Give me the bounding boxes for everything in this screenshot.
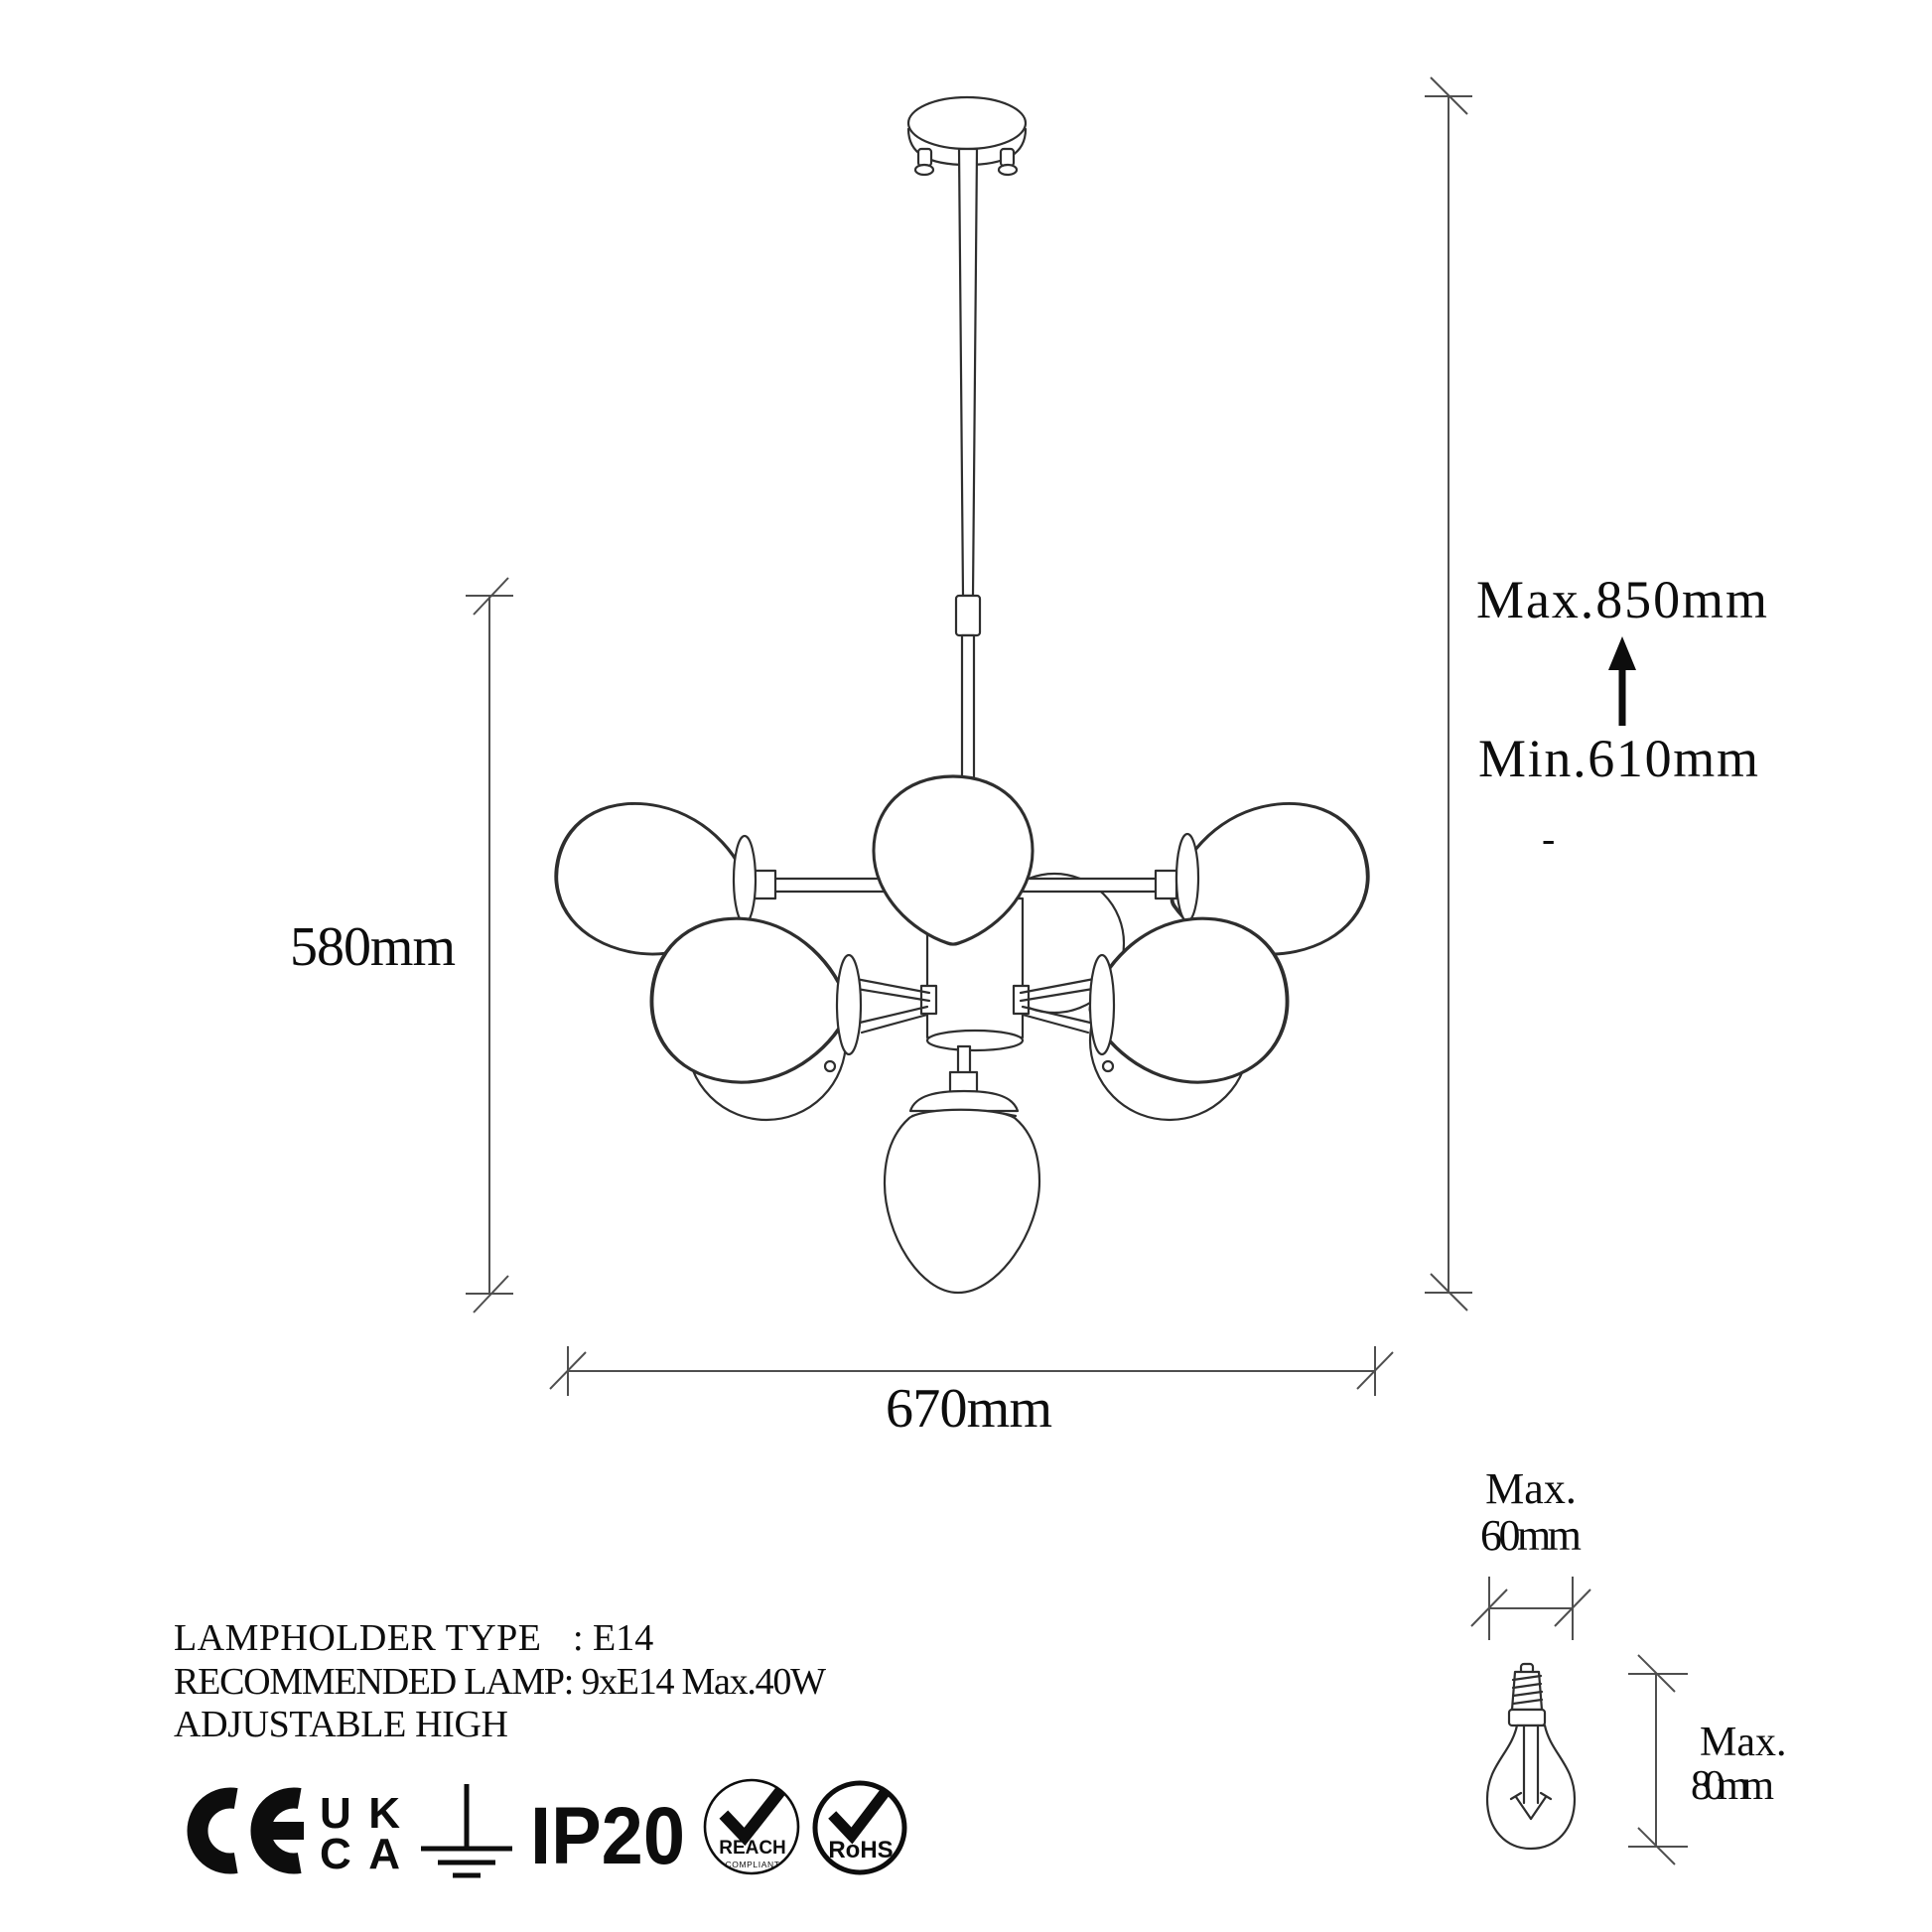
reach-badge-icon: REACH COMPLIANT: [705, 1780, 798, 1873]
spec-text-block: LAMPHOLDER TYPE : E14 RECOMMENDED LAMP: …: [174, 1617, 826, 1745]
rim-middle-left: [837, 955, 861, 1054]
arm-lower-left-rod2b: [862, 1015, 927, 1033]
certification-row: UK CA IP20 REACH COMPLIANT RoHS: [198, 1780, 904, 1881]
bulb-collar: [1509, 1710, 1545, 1725]
canopy-screw-right-foot: [999, 165, 1017, 175]
spec-lampholder-label: LAMPHOLDER TYPE: [174, 1617, 541, 1659]
label-bulb-height-value: 80mm: [1691, 1763, 1774, 1809]
dimension-fixture-height: 580mm: [290, 578, 513, 1312]
light-bulb-icon: [1487, 1664, 1575, 1849]
spec-lampholder-value: : E14: [573, 1617, 653, 1659]
rim-middle-right: [1090, 955, 1114, 1054]
rod-joint: [956, 596, 980, 635]
dimension-bulb-height: [1628, 1655, 1688, 1864]
reach-label: REACH: [719, 1838, 786, 1859]
canopy-screw-left: [918, 149, 931, 166]
ce-letter-c: [198, 1798, 236, 1863]
rod-lower: [962, 635, 974, 782]
arrow-head: [1608, 636, 1636, 670]
rod-upper: [959, 149, 977, 596]
canopy-screw-right: [1001, 149, 1014, 166]
arm-upper-right: [1023, 879, 1157, 892]
arm-lower-left-rod2: [860, 1007, 927, 1023]
chandelier-drawing: [542, 97, 1381, 1293]
bulb-diagram: Max. 60mm: [1471, 1464, 1787, 1864]
hub-flange: [927, 1031, 1023, 1050]
label-bulb-width-max: Max.: [1485, 1464, 1577, 1513]
label-bulb-height-max: Max.: [1700, 1720, 1787, 1765]
dimension-adjustable-height: Max.850mm Min.610mm -: [1425, 77, 1767, 1311]
bottom-collar: [910, 1091, 1018, 1111]
label-dash: -: [1542, 816, 1555, 861]
bottom-stem: [958, 1046, 970, 1074]
up-arrow-icon: [1608, 636, 1636, 726]
spec-adjustable-high: ADJUSTABLE HIGH: [174, 1704, 508, 1745]
arm-lower-right-rod2b: [1023, 1015, 1088, 1033]
label-fixture-height: 580mm: [290, 916, 456, 978]
dimension-bulb-width: [1471, 1577, 1590, 1640]
rim-upper-left: [734, 836, 756, 923]
reach-sublabel: COMPLIANT: [726, 1860, 780, 1869]
arm-upper-left-bracket: [755, 871, 775, 898]
chandelier-spec-diagram: Max.850mm Min.610mm - 580mm 670mm Max. 6…: [0, 0, 1932, 1932]
bottom-assembly: [885, 1046, 1039, 1293]
ip-rating-mark: IP20: [530, 1791, 685, 1881]
canopy-screw-left-foot: [915, 165, 933, 175]
ukca-line2: CA: [320, 1830, 400, 1878]
dimension-fixture-width: 670mm: [550, 1346, 1393, 1440]
label-height-min: Min.610mm: [1478, 729, 1758, 788]
ukca-mark: UK CA: [320, 1789, 400, 1878]
rohs-badge-icon: RoHS: [815, 1783, 904, 1872]
label-bulb-width-value: 60mm: [1480, 1511, 1582, 1560]
reach-checkmark: [728, 1795, 777, 1837]
diagram-canvas: Max.850mm Min.610mm - 580mm 670mm Max. 6…: [0, 0, 1932, 1932]
canopy-top: [908, 97, 1026, 149]
label-fixture-width: 670mm: [886, 1378, 1052, 1440]
rohs-checkmark: [836, 1794, 884, 1836]
ce-mark-icon: [198, 1798, 304, 1863]
rim-upper-right: [1176, 834, 1198, 921]
earth-ground-icon: [421, 1784, 512, 1875]
spec-recommended-lamp: RECOMMENDED LAMP: 9xE14 Max.40W: [174, 1661, 826, 1703]
arm-upper-right-bracket: [1156, 871, 1176, 898]
suspension-rod: [956, 149, 980, 782]
bulb-glass: [1487, 1725, 1575, 1849]
shade-bottom: [885, 1110, 1039, 1293]
rohs-label: RoHS: [828, 1837, 893, 1863]
label-height-max: Max.850mm: [1476, 570, 1767, 629]
